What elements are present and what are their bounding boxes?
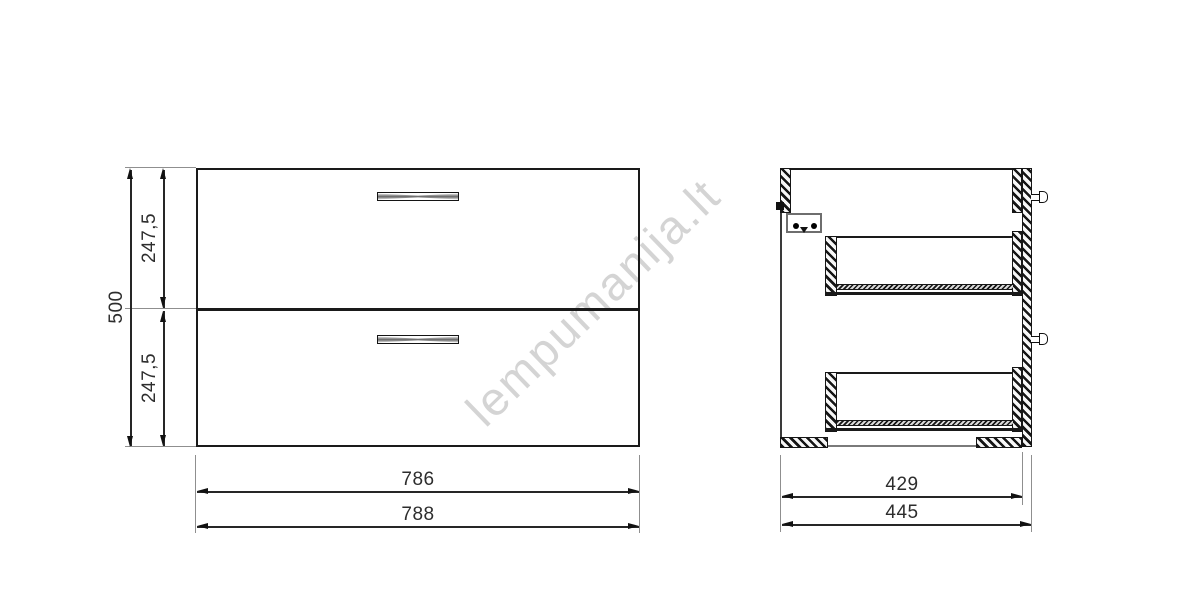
top-handle-side-cap: [1039, 191, 1048, 203]
front-panel-section: [1022, 168, 1032, 447]
dim-line-247-top: [163, 170, 165, 308]
bottom-panel-right-section: [976, 437, 1022, 448]
wall-hook: [776, 202, 784, 210]
extension-line: [125, 308, 196, 309]
dim-label-depth-outer: 445: [872, 503, 932, 523]
drawer1-back-section: [825, 236, 837, 296]
arrowhead: [782, 521, 793, 527]
drawer2-slide-line: [825, 428, 1022, 431]
dim-line-786: [197, 491, 639, 493]
dim-line-247-bottom: [163, 311, 165, 446]
drawer2-back-section: [825, 372, 837, 432]
dim-label-bottom-drawer: 247,5: [140, 348, 160, 408]
dim-label-total-height: 500: [107, 277, 127, 337]
extension-line: [125, 446, 196, 447]
arrowhead: [160, 297, 166, 308]
bottom-panel-edge-line: [828, 445, 976, 447]
arrowhead: [782, 493, 793, 499]
dim-line-445: [782, 524, 1031, 526]
bracket-notch: [800, 227, 808, 233]
dim-line-500: [130, 170, 132, 446]
extension-line: [1022, 452, 1023, 505]
arrowhead: [160, 168, 166, 179]
drawer1-front-section: [1012, 231, 1022, 296]
bracket-screw-right: [811, 223, 817, 229]
arrowhead: [160, 435, 166, 446]
cabinet-top-line: [780, 168, 1032, 170]
arrowhead: [197, 488, 208, 494]
drawer2-top-line: [825, 372, 1022, 374]
arrowhead: [628, 523, 639, 529]
extension-line: [639, 455, 640, 533]
arrowhead: [1020, 521, 1031, 527]
drawer1-slide-line: [825, 292, 1022, 295]
arrowhead: [1011, 493, 1022, 499]
drawer1-top-line: [825, 236, 1022, 238]
arrowhead: [628, 488, 639, 494]
technical-drawing-canvas: lempumanija.lt 500 247,5 247,5: [0, 0, 1182, 607]
bottom-panel-left-section: [780, 437, 828, 448]
bottom-handle-side-cap: [1039, 333, 1048, 345]
bottom-drawer-handle: [377, 335, 459, 344]
extension-line: [1031, 455, 1032, 532]
handle-shading: [378, 193, 458, 200]
drawer2-bottom-panel: [837, 420, 1013, 426]
dim-label-width-inner: 786: [388, 470, 448, 490]
dim-label-width-outer: 788: [388, 505, 448, 525]
arrowhead: [127, 436, 133, 447]
arrowhead: [160, 311, 166, 322]
extension-line: [780, 455, 781, 532]
dim-line-788: [197, 526, 639, 528]
drawer-divider-line: [198, 308, 638, 311]
arrowhead: [197, 523, 208, 529]
drawer2-front-section: [1012, 367, 1022, 432]
extension-line: [195, 455, 196, 533]
handle-shading: [378, 336, 458, 343]
front-top-rail-section: [1012, 168, 1022, 213]
dim-label-top-drawer: 247,5: [140, 208, 160, 268]
drawer1-bottom-panel: [837, 284, 1013, 290]
arrowhead: [127, 168, 133, 179]
bracket-screw-left: [793, 223, 799, 229]
dim-label-depth-inner: 429: [872, 475, 932, 495]
top-drawer-handle: [377, 192, 459, 201]
dim-line-429: [782, 496, 1022, 498]
